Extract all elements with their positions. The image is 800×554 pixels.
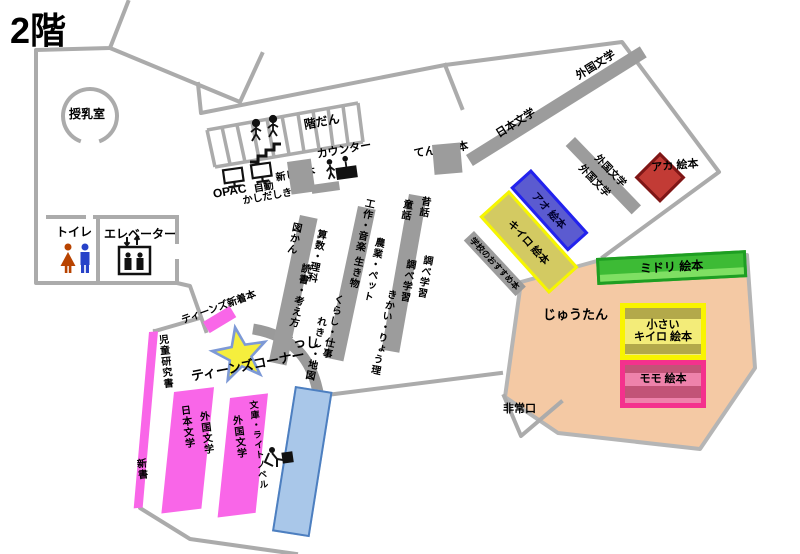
stairs-icon bbox=[207, 103, 363, 167]
small-yellow-picture-books-box: 小さい キイロ 絵本 bbox=[620, 303, 706, 360]
small-yellow-label-line2: キイロ 絵本 bbox=[625, 331, 701, 343]
elevator-label: エレベーター bbox=[104, 228, 176, 241]
emergency-exit-label: 非常口 bbox=[503, 403, 536, 415]
toilet-label: トイレ bbox=[56, 226, 92, 239]
peach-picture-books-box: モモ 絵本 bbox=[620, 360, 706, 408]
wall-nursing-notch bbox=[110, 48, 262, 102]
small-yellow-stripe-top bbox=[625, 308, 701, 319]
floor-map-2f: 2階 授乳室 トイレ エレベーター 階だん カウンター OPAC 自動 かしだし… bbox=[0, 0, 800, 554]
carpet-label: じゅうたん bbox=[543, 308, 608, 322]
peach-picture-books-label: モモ 絵本 bbox=[625, 373, 701, 385]
display-books-shelf bbox=[432, 143, 463, 175]
wall-bottom-center bbox=[319, 373, 501, 396]
peach-stripe-top bbox=[625, 365, 701, 373]
small-yellow-stripe-bottom bbox=[625, 344, 701, 354]
small-yellow-label-line1: 小さい bbox=[625, 319, 701, 331]
green-picture-books-label: ミドリ 絵本 bbox=[599, 253, 744, 282]
peach-stripe-bottom bbox=[625, 386, 701, 398]
wall-stub-stairs bbox=[445, 65, 462, 108]
teens-shinsho-label: 新書 bbox=[134, 458, 147, 481]
floor-title: 2階 bbox=[10, 2, 66, 54]
nursing-room-label: 授乳室 bbox=[69, 108, 105, 121]
